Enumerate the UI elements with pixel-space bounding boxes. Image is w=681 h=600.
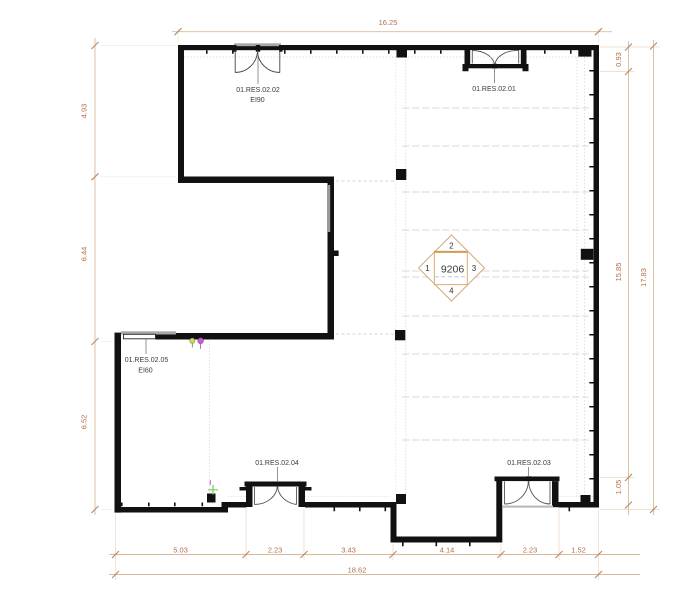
svg-text:16.25: 16.25 xyxy=(379,18,398,27)
svg-text:17.83: 17.83 xyxy=(639,268,648,287)
svg-text:01.RES.02.01: 01.RES.02.01 xyxy=(472,86,516,93)
svg-text:1.52: 1.52 xyxy=(571,545,586,554)
svg-text:5.03: 5.03 xyxy=(173,545,188,554)
svg-text:0.93: 0.93 xyxy=(614,52,623,67)
svg-text:9206: 9206 xyxy=(441,263,465,275)
svg-text:6.44: 6.44 xyxy=(80,247,89,262)
svg-text:01.RES.02.04: 01.RES.02.04 xyxy=(255,460,299,467)
svg-text:01.RES.02.05: 01.RES.02.05 xyxy=(125,357,169,364)
svg-text:4: 4 xyxy=(449,287,454,296)
svg-text:1: 1 xyxy=(425,264,430,273)
svg-text:15.85: 15.85 xyxy=(614,263,623,282)
svg-text:01.RES.02.02: 01.RES.02.02 xyxy=(236,87,280,94)
svg-text:18.62: 18.62 xyxy=(348,565,367,574)
svg-text:EI60: EI60 xyxy=(138,368,153,375)
svg-text:2.23: 2.23 xyxy=(523,545,538,554)
svg-text:EI90: EI90 xyxy=(250,97,265,104)
svg-text:2.23: 2.23 xyxy=(268,545,283,554)
svg-text:4.14: 4.14 xyxy=(440,545,455,554)
svg-text:1.05: 1.05 xyxy=(614,480,623,495)
svg-text:4.93: 4.93 xyxy=(80,104,89,119)
svg-text:3.43: 3.43 xyxy=(341,545,356,554)
svg-text:01.RES.02.03: 01.RES.02.03 xyxy=(507,460,551,467)
svg-text:3: 3 xyxy=(472,264,477,273)
svg-text:6.52: 6.52 xyxy=(80,415,89,430)
svg-text:2: 2 xyxy=(449,241,454,250)
